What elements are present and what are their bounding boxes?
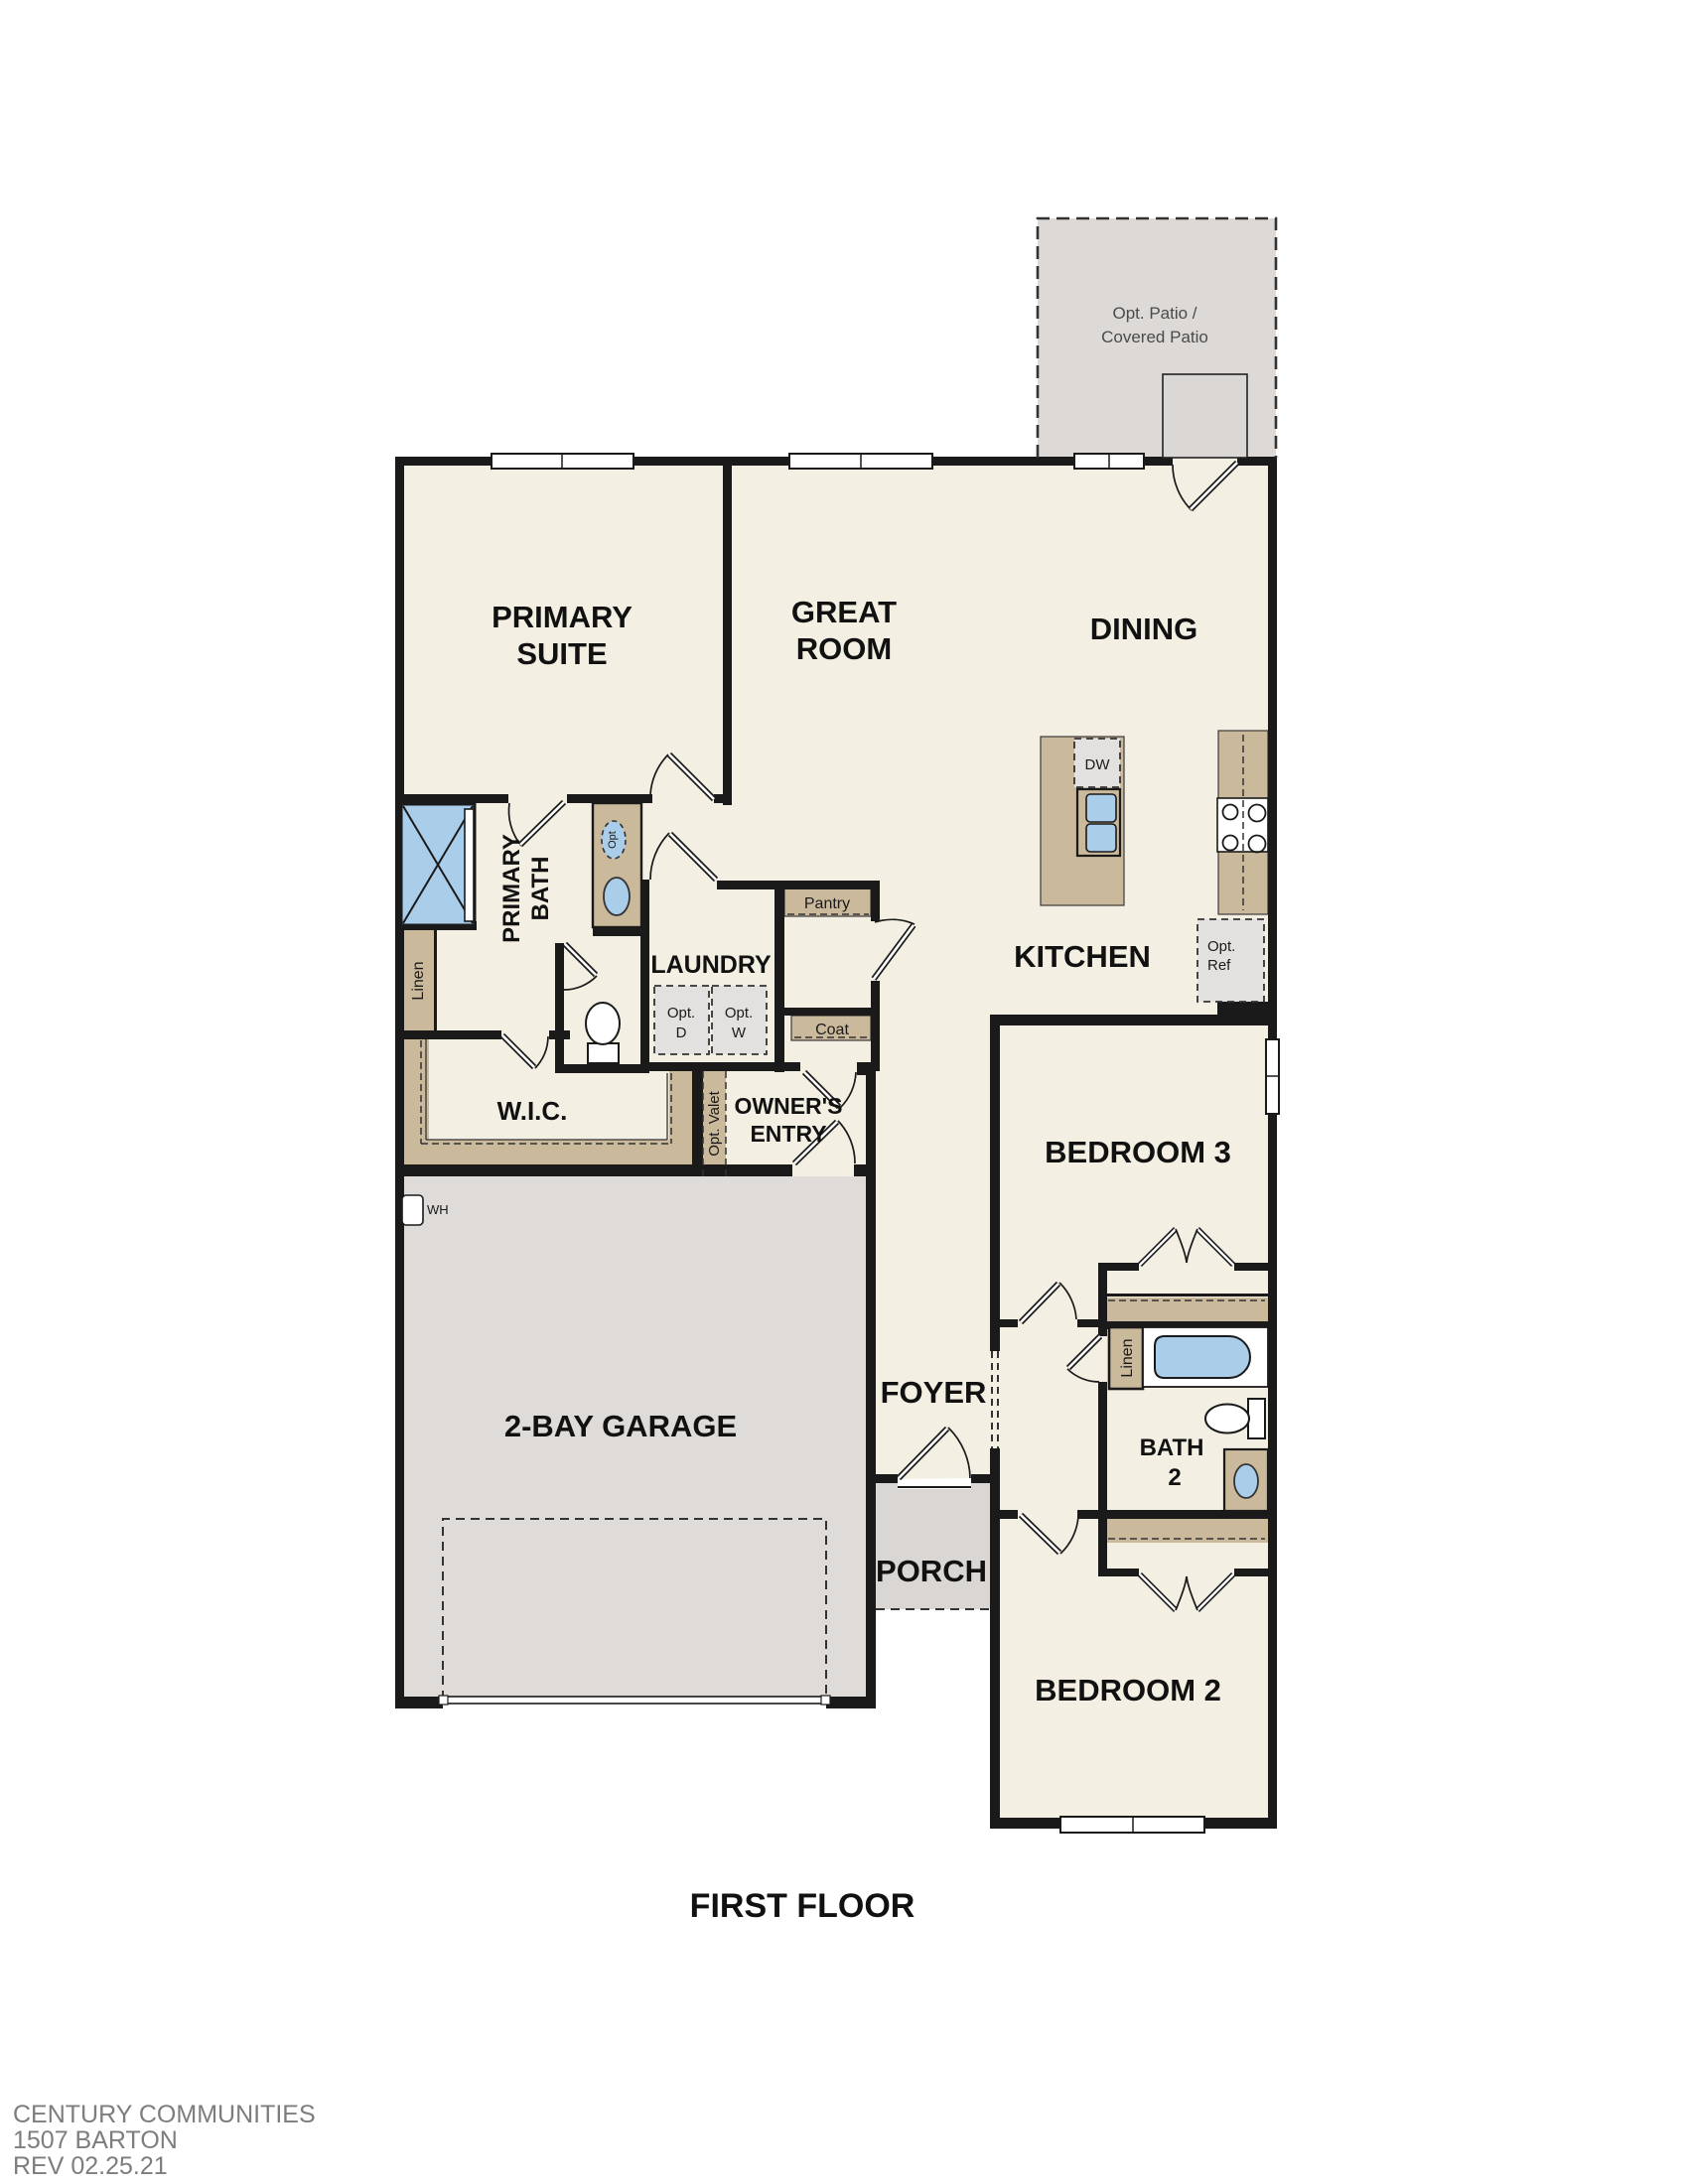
svg-text:GREAT: GREAT (791, 595, 897, 629)
svg-text:ENTRY: ENTRY (750, 1121, 826, 1147)
svg-text:PRIMARY: PRIMARY (498, 834, 525, 943)
svg-text:SUITE: SUITE (516, 636, 607, 671)
svg-text:FIRST FLOOR: FIRST FLOOR (690, 1887, 915, 1925)
svg-text:BATH: BATH (1140, 1434, 1204, 1461)
svg-text:WH: WH (427, 1202, 449, 1217)
svg-text:REV 02.25.21: REV 02.25.21 (13, 2152, 168, 2180)
svg-text:PRIMARY: PRIMARY (492, 600, 633, 634)
svg-text:FOYER: FOYER (881, 1375, 987, 1410)
svg-text:D: D (676, 1024, 687, 1041)
svg-text:BATH: BATH (527, 857, 554, 921)
svg-text:Opt.: Opt. (1207, 938, 1235, 955)
svg-text:CENTURY COMMUNITIES: CENTURY COMMUNITIES (13, 2101, 316, 2128)
svg-text:W: W (732, 1024, 747, 1041)
svg-text:Covered Patio: Covered Patio (1101, 328, 1208, 346)
svg-text:DW: DW (1085, 756, 1111, 773)
svg-text:2: 2 (1168, 1464, 1181, 1491)
svg-text:Linen: Linen (1119, 1338, 1136, 1377)
svg-text:BEDROOM 3: BEDROOM 3 (1045, 1135, 1231, 1169)
svg-text:Opt.: Opt. (667, 1005, 695, 1022)
svg-text:BEDROOM 2: BEDROOM 2 (1035, 1673, 1221, 1707)
svg-text:Opt. Valet: Opt. Valet (706, 1090, 723, 1156)
svg-text:Ref: Ref (1207, 957, 1231, 974)
svg-text:Pantry: Pantry (804, 895, 850, 912)
svg-text:DINING: DINING (1090, 612, 1198, 646)
svg-text:Linen: Linen (410, 961, 427, 1000)
svg-text:KITCHEN: KITCHEN (1014, 939, 1151, 974)
svg-text:OWNER'S: OWNER'S (735, 1093, 843, 1119)
svg-text:ROOM: ROOM (796, 631, 892, 666)
svg-text:W.I.C.: W.I.C. (497, 1096, 568, 1126)
svg-text:Opt. Patio /: Opt. Patio / (1112, 304, 1196, 323)
svg-text:LAUNDRY: LAUNDRY (650, 951, 772, 979)
svg-text:Coat: Coat (815, 1022, 849, 1038)
svg-text:1507 BARTON: 1507 BARTON (13, 2126, 178, 2154)
svg-text:PORCH: PORCH (876, 1554, 987, 1588)
svg-text:Opt: Opt (607, 831, 619, 849)
svg-text:2-BAY GARAGE: 2-BAY GARAGE (504, 1409, 737, 1443)
svg-text:Opt.: Opt. (725, 1005, 753, 1022)
